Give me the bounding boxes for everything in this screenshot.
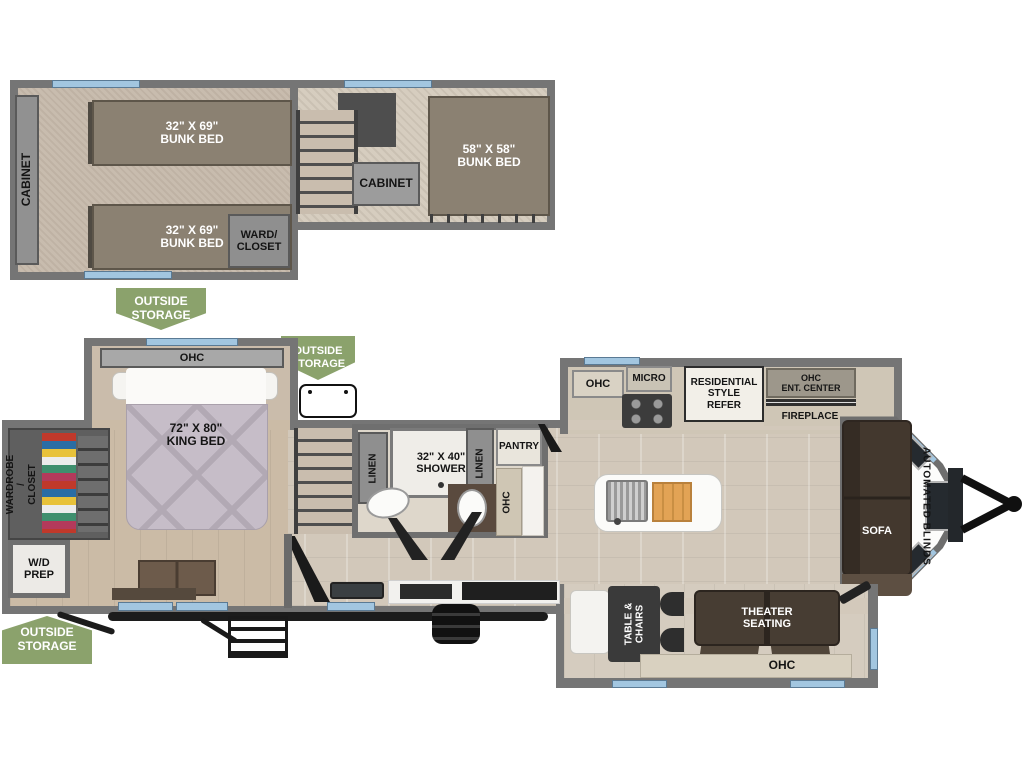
- window: [870, 628, 878, 670]
- rv-floor-plan: CABINET 32" X 69" BUNK BED 32" X 69" BUN…: [0, 0, 1024, 768]
- loft-stairs: [296, 110, 358, 214]
- loft-bunk-bed-top: 32" X 69" BUNK BED: [92, 100, 292, 166]
- island-sink: [606, 480, 648, 522]
- window: [790, 680, 845, 688]
- loft-bunk-bed-bottom-label: 32" X 69" BUNK BED: [160, 224, 223, 251]
- ward-closet: WARD/ CLOSET: [228, 214, 290, 268]
- sofa-label: SOFA: [862, 525, 892, 537]
- loft-bunk-bed-rear-label: 58" X 58" BUNK BED: [457, 143, 520, 170]
- bath-ohc-wrap: OHC: [494, 480, 520, 524]
- dinette-chair: [660, 628, 684, 652]
- loft-cabinet: CABINET: [352, 162, 420, 206]
- dinette-ohc-label-wrap: OHC: [752, 656, 812, 676]
- loft-side-cabinet-label: CABINET: [20, 153, 33, 206]
- theater-seating-label: THEATER SEATING: [741, 606, 792, 631]
- outside-griddle: [400, 584, 452, 599]
- pantry: PANTRY: [496, 428, 542, 466]
- window: [84, 271, 172, 279]
- linen-left-label: LINEN: [368, 453, 379, 483]
- loft-bunk-bed-top-label: 32" X 69" BUNK BED: [160, 120, 223, 147]
- loft-cabinet-label: CABINET: [359, 177, 412, 190]
- window: [52, 80, 140, 88]
- theater-seating: THEATER SEATING: [694, 590, 840, 646]
- dinette-table: TABLE & CHAIRS: [608, 586, 660, 662]
- bedroom-ohc-label: OHC: [180, 352, 204, 364]
- entertainment-center-label: OHC ENT. CENTER: [781, 373, 840, 393]
- outside-griddle: [330, 582, 384, 599]
- kitchen-ohc-label: OHC: [586, 378, 610, 390]
- dinette-ohc: [640, 654, 852, 678]
- stove: [622, 394, 672, 428]
- king-bed-label: 72" X 80" KING BED: [167, 422, 226, 449]
- pantry-label: PANTRY: [499, 441, 539, 452]
- hitch-icon: [948, 462, 1024, 548]
- bedroom-bench: [112, 588, 196, 600]
- automated-blinds-label: AUTOMATED BLINDS: [921, 447, 932, 566]
- window: [584, 357, 640, 365]
- outside-storage-badge: OUTSIDE STORAGE: [116, 288, 206, 330]
- window: [176, 602, 228, 611]
- kitchen-ohc: OHC: [572, 370, 624, 398]
- bath-ohc-label: OHC: [501, 491, 512, 513]
- bedroom-ohc: OHC: [100, 348, 284, 368]
- cutting-board: [652, 482, 692, 522]
- window: [327, 602, 375, 611]
- refrigerator-label: RESIDENTIAL STYLE REFER: [691, 377, 758, 411]
- window: [612, 680, 667, 688]
- entertainment-center: OHC ENT. CENTER: [766, 368, 856, 398]
- awning-rail: [108, 612, 548, 621]
- shower-label: 32" X 40" SHOWER: [416, 451, 466, 476]
- island-faucet: [614, 518, 621, 525]
- loft-side-cabinet-label-wrap: CABINET: [15, 95, 39, 265]
- wd-prep: W/D PREP: [8, 540, 70, 598]
- loft-railing: [430, 214, 546, 223]
- king-bed-label-wrap: 72" X 80" KING BED: [130, 418, 262, 452]
- dinette-ohc-label: OHC: [769, 659, 796, 672]
- sofa-label-wrap: SOFA: [848, 522, 906, 540]
- fireplace-label: FIREPLACE: [782, 411, 839, 422]
- window: [118, 602, 173, 611]
- wardrobe-label: WARDROBE / CLOSET: [6, 454, 39, 513]
- window: [344, 80, 432, 88]
- microwave-label: MICRO: [632, 373, 665, 384]
- outside-griddle-tray-icon: [299, 384, 357, 418]
- wardrobe-clothes: [42, 433, 76, 533]
- linen-right-label: LINEN: [475, 448, 486, 478]
- automated-blinds-wrap: AUTOMATED BLINDS: [916, 450, 936, 562]
- sofa: [842, 420, 912, 576]
- dinette-bench: [570, 590, 610, 654]
- entry-steps: [228, 616, 288, 658]
- microwave: MICRO: [626, 366, 672, 392]
- refrigerator: RESIDENTIAL STYLE REFER: [684, 366, 764, 422]
- fire-pit: [432, 604, 480, 644]
- wardrobe-label-wrap: WARDROBE / CLOSET: [6, 428, 38, 540]
- bedroom-wall: [284, 534, 292, 608]
- wd-prep-label: W/D PREP: [24, 557, 54, 582]
- loft-bunk-bed-rear: 58" X 58" BUNK BED: [428, 96, 550, 216]
- bath-counter-white: [522, 466, 544, 536]
- main-stairs: [294, 428, 356, 534]
- outside-griddle: [462, 582, 557, 600]
- dinette-table-label: TABLE & CHAIRS: [623, 603, 645, 646]
- griddle-knob: [308, 390, 312, 394]
- wardrobe-shelves: [78, 436, 108, 532]
- griddle-knob: [344, 390, 348, 394]
- window: [146, 338, 238, 346]
- ward-closet-label: WARD/ CLOSET: [237, 229, 282, 254]
- shower-drain: [438, 482, 444, 488]
- dinette-chair: [660, 592, 684, 616]
